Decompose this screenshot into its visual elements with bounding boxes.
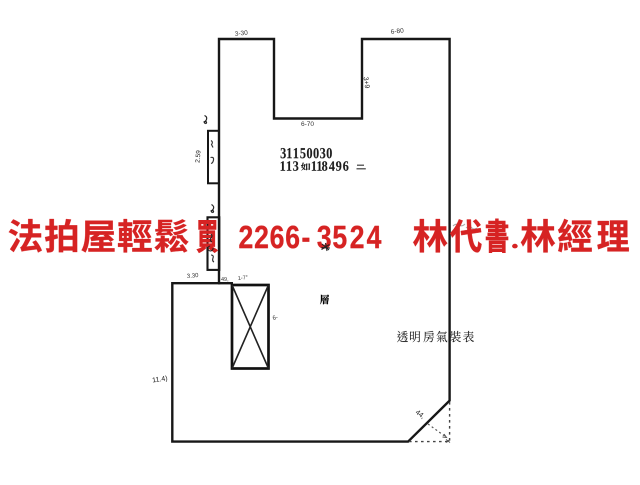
svg-text:49,: 49, (221, 277, 229, 283)
svg-text:1-7°: 1-7° (238, 275, 249, 282)
svg-text:6-70: 6-70 (301, 121, 314, 128)
svg-text:3-30: 3-30 (234, 30, 248, 38)
svg-text:3.30: 3.30 (187, 273, 200, 280)
svg-text:2.59: 2.59 (195, 150, 203, 164)
